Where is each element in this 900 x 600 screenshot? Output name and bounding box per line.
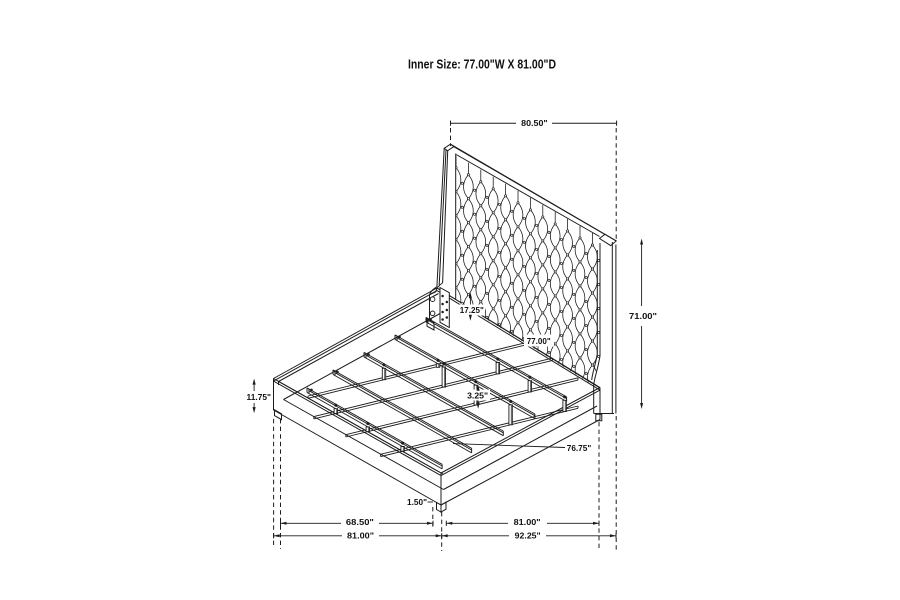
svg-text:81.00": 81.00" <box>347 531 374 541</box>
svg-text:Inner Size: 77.00"W X 81.00"D: Inner Size: 77.00"W X 81.00"D <box>408 57 556 71</box>
svg-text:3.25": 3.25" <box>467 390 488 400</box>
svg-text:17.25": 17.25" <box>460 305 484 315</box>
svg-text:92.25": 92.25" <box>515 530 541 540</box>
svg-text:11.75": 11.75" <box>247 392 272 402</box>
svg-text:71.00": 71.00" <box>629 311 657 321</box>
svg-text:81.00": 81.00" <box>514 517 541 527</box>
svg-text:77.00": 77.00" <box>527 336 551 346</box>
svg-text:68.50": 68.50" <box>346 517 374 527</box>
svg-text:80.50": 80.50" <box>521 118 548 128</box>
svg-text:1.50": 1.50" <box>407 497 427 507</box>
svg-text:76.75": 76.75" <box>567 443 592 453</box>
